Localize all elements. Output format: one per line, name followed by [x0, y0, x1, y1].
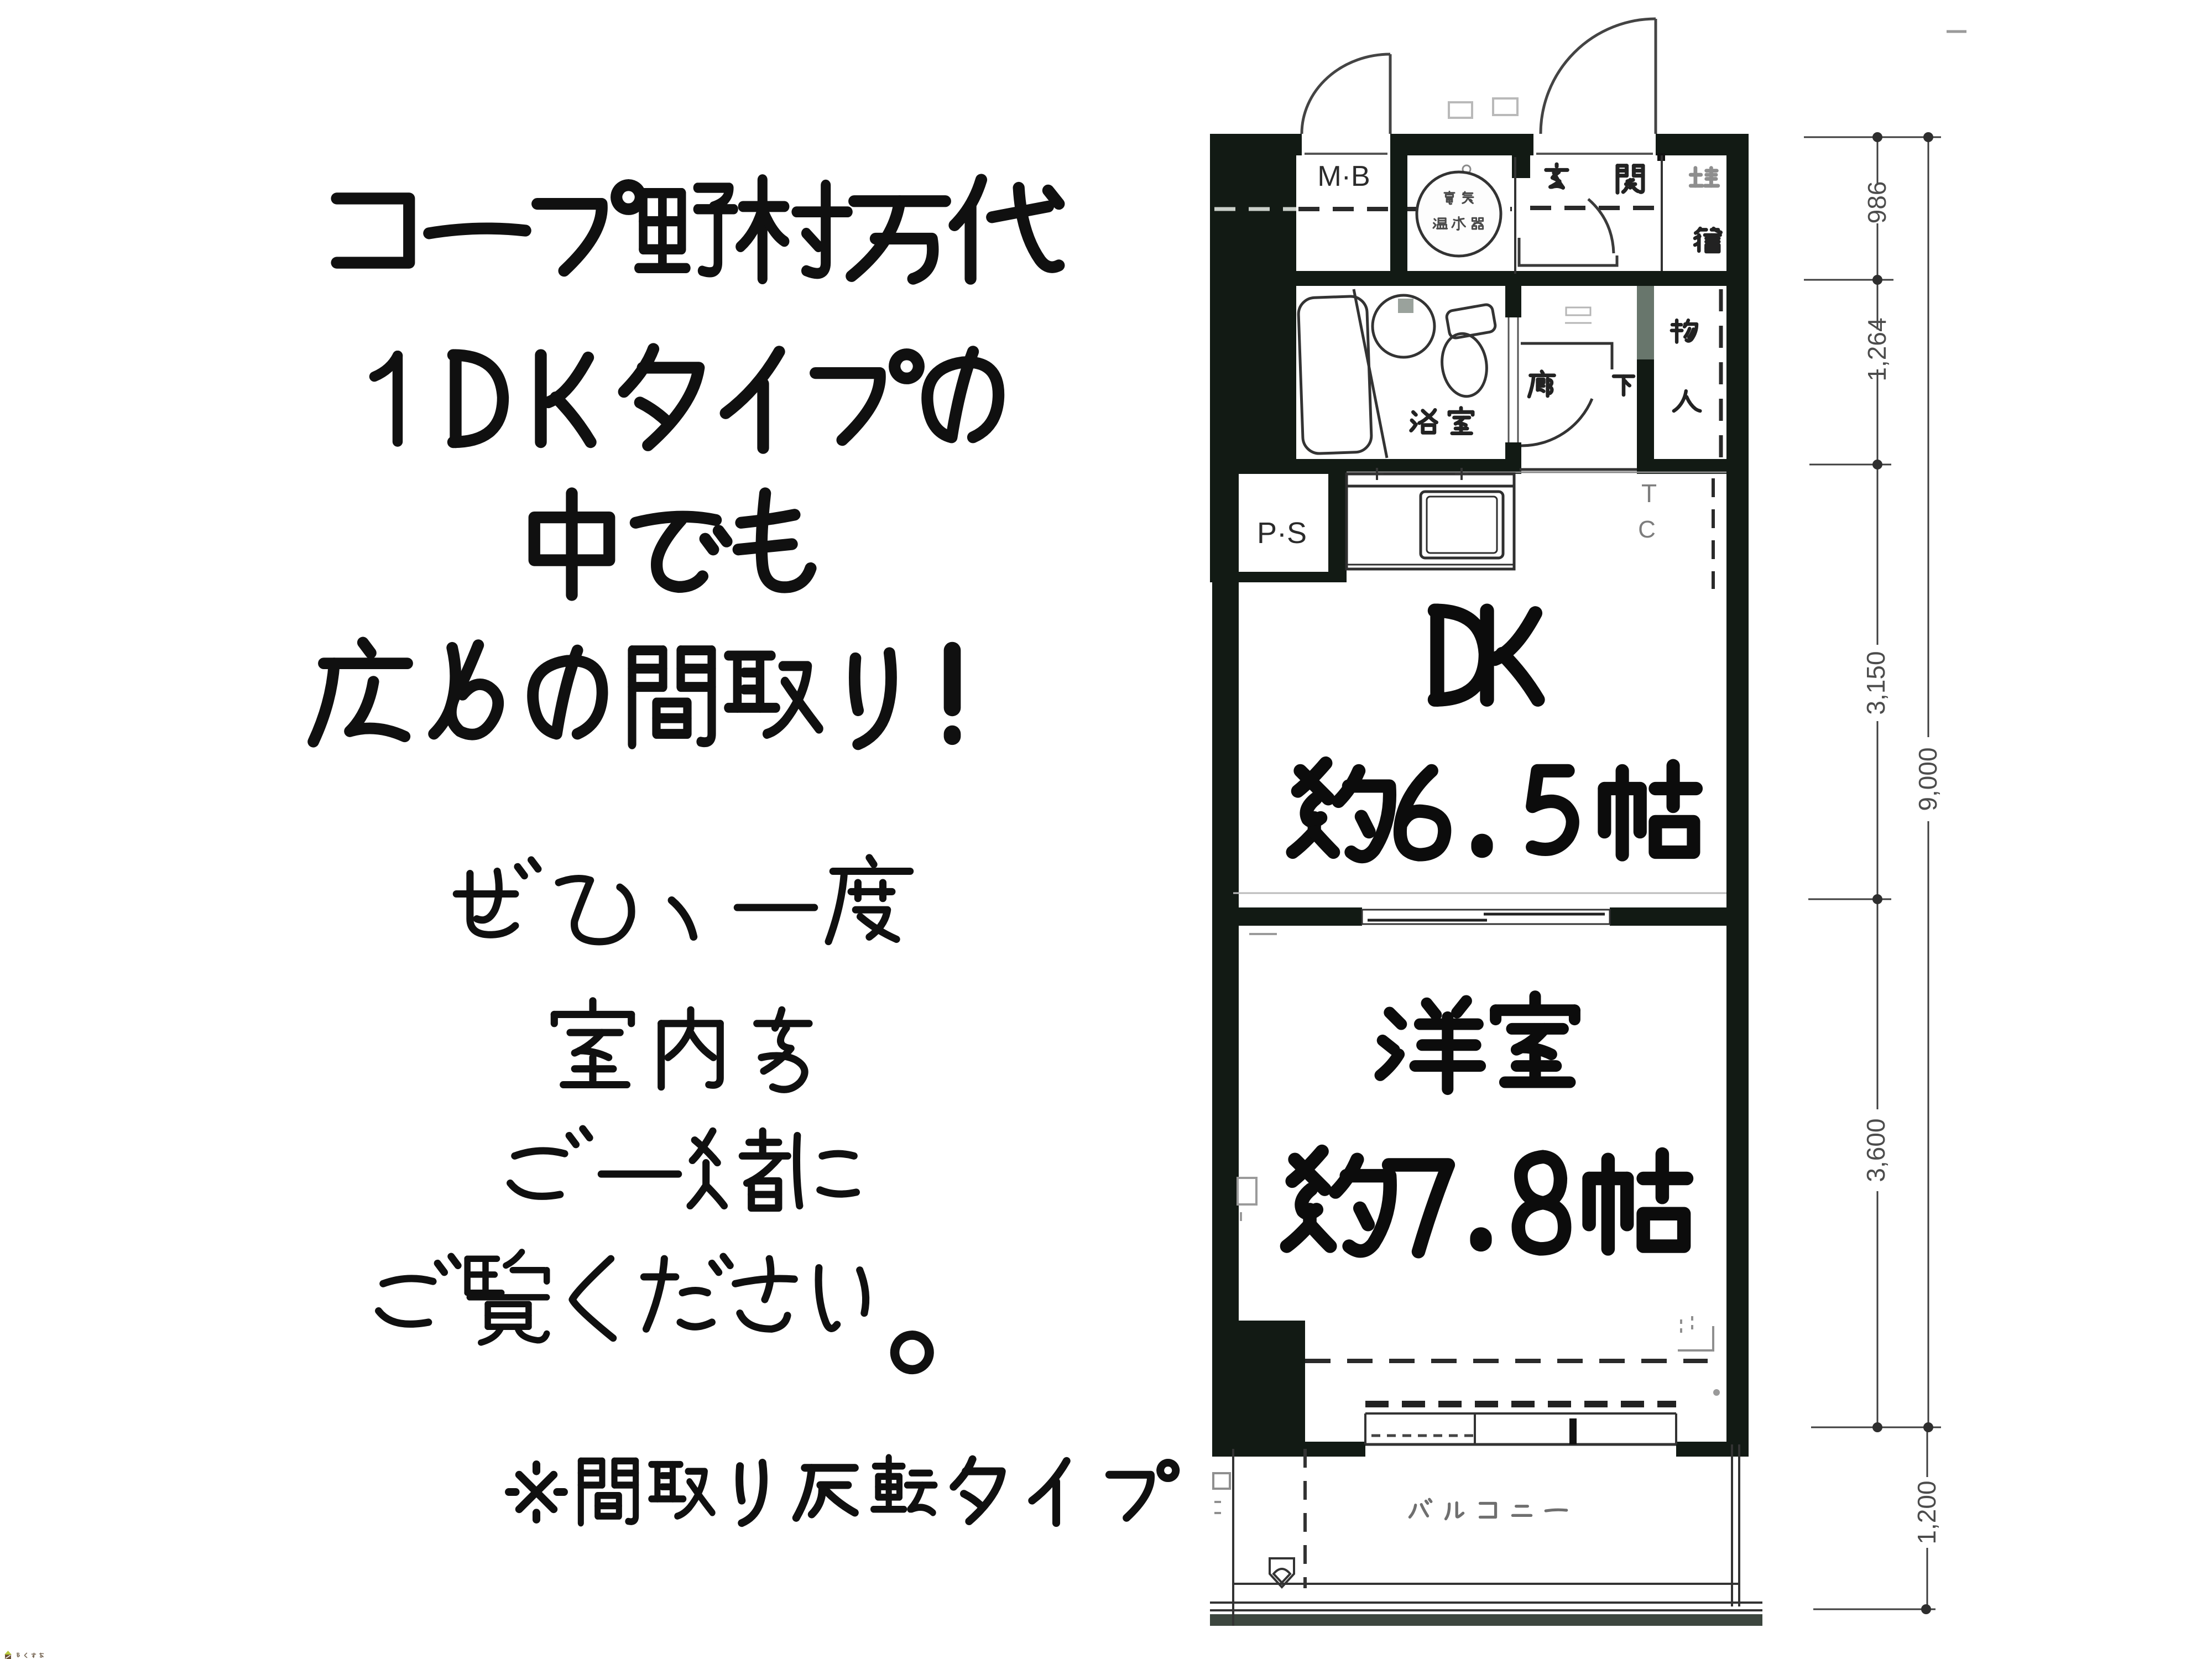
svg-text:M·B: M·B [1317, 160, 1370, 192]
svg-text:T: T [1641, 479, 1657, 508]
svg-text:3,600: 3,600 [1861, 1118, 1890, 1182]
svg-text:P·S: P·S [1257, 517, 1307, 550]
svg-text:C: C [1638, 516, 1656, 543]
svg-text:3,150: 3,150 [1861, 651, 1890, 714]
svg-text:986: 986 [1863, 181, 1891, 224]
svg-text:1,264: 1,264 [1863, 317, 1891, 381]
svg-text:9,000: 9,000 [1913, 747, 1942, 811]
svg-text:1,200: 1,200 [1912, 1480, 1941, 1544]
